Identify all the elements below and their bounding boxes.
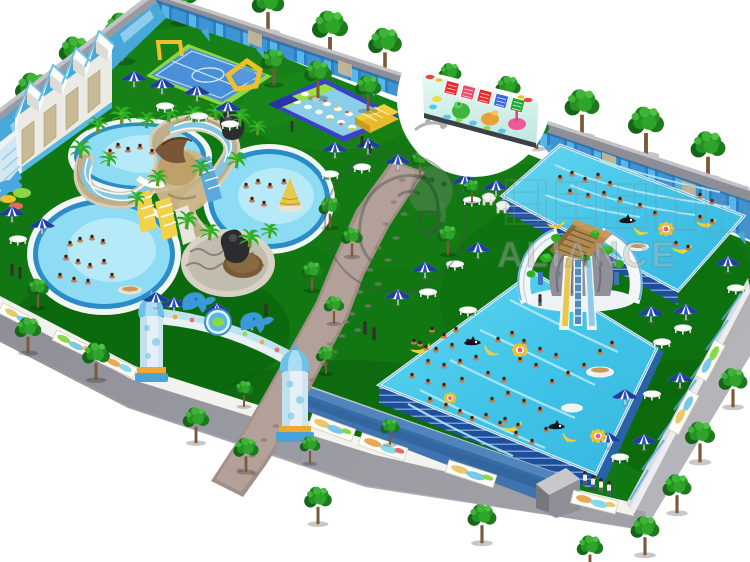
svg-text:ALIANCE: ALIANCE xyxy=(497,234,678,275)
